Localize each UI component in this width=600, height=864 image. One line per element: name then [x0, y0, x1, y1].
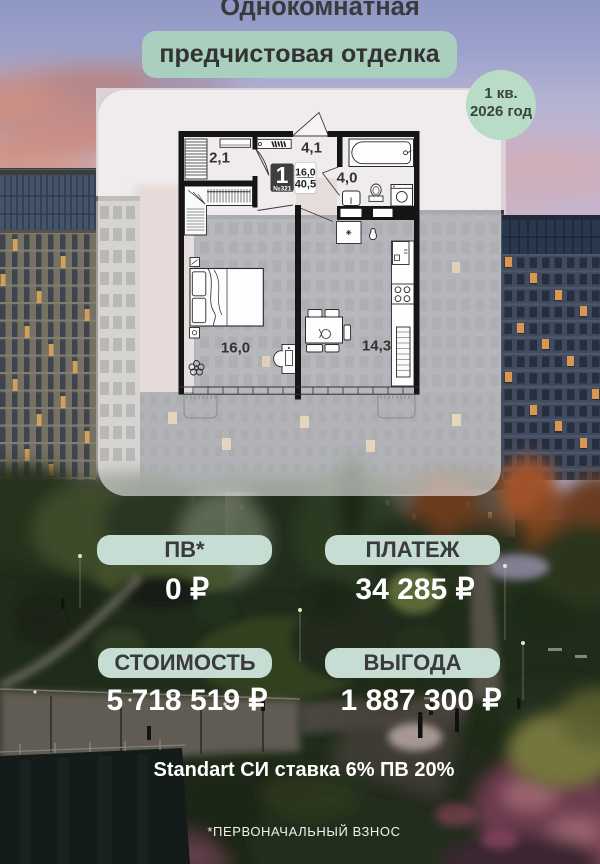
svg-text:40,5: 40,5 [295, 179, 316, 191]
svg-text:4,0: 4,0 [337, 170, 358, 187]
svg-text:16,0: 16,0 [295, 167, 316, 179]
svg-text:№321: №321 [273, 185, 292, 192]
svg-text:2,1: 2,1 [209, 150, 230, 167]
svg-text:4,1: 4,1 [301, 140, 322, 157]
svg-text:1: 1 [276, 162, 289, 188]
svg-text:14,3: 14,3 [362, 338, 391, 355]
svg-text:16,0: 16,0 [221, 340, 250, 357]
